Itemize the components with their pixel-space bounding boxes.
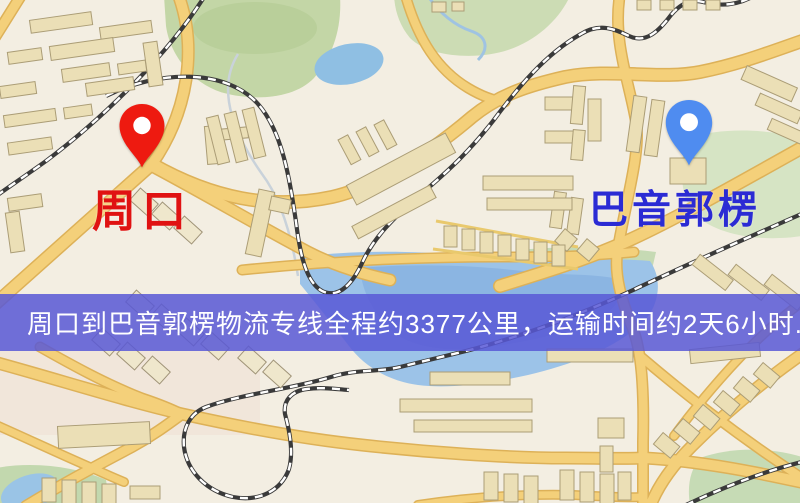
destination-pin-icon (663, 99, 715, 167)
map-canvas[interactable]: 周口 巴音郭楞 周口到巴音郭楞物流专线全程约3377公里，运输时间约2天6小时. (0, 0, 800, 503)
destination-pin[interactable] (663, 99, 715, 167)
destination-label: 巴音郭楞 (589, 179, 761, 235)
route-info-banner: 周口到巴音郭楞物流专线全程约3377公里，运输时间约2天6小时. (0, 294, 800, 351)
origin-label: 周口 (92, 175, 192, 239)
origin-pin[interactable] (117, 103, 167, 169)
route-info-text: 周口到巴音郭楞物流专线全程约3377公里，运输时间约2天6小时. (27, 304, 800, 341)
map-graphics (0, 0, 800, 503)
origin-pin-icon (117, 103, 167, 169)
